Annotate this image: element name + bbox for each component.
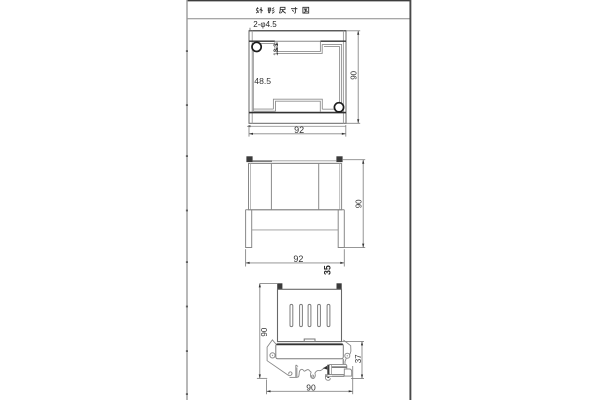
svg-text:92: 92 bbox=[294, 125, 304, 135]
svg-text:48.5: 48.5 bbox=[254, 76, 271, 86]
svg-text:2-φ4.5: 2-φ4.5 bbox=[253, 20, 277, 29]
svg-text:90: 90 bbox=[306, 383, 316, 393]
svg-text:90: 90 bbox=[349, 70, 358, 79]
svg-text:35: 35 bbox=[322, 265, 332, 275]
svg-text:37: 37 bbox=[354, 354, 363, 363]
svg-text:92: 92 bbox=[293, 254, 303, 264]
svg-text:90: 90 bbox=[260, 327, 269, 336]
svg-text:90: 90 bbox=[355, 199, 364, 208]
